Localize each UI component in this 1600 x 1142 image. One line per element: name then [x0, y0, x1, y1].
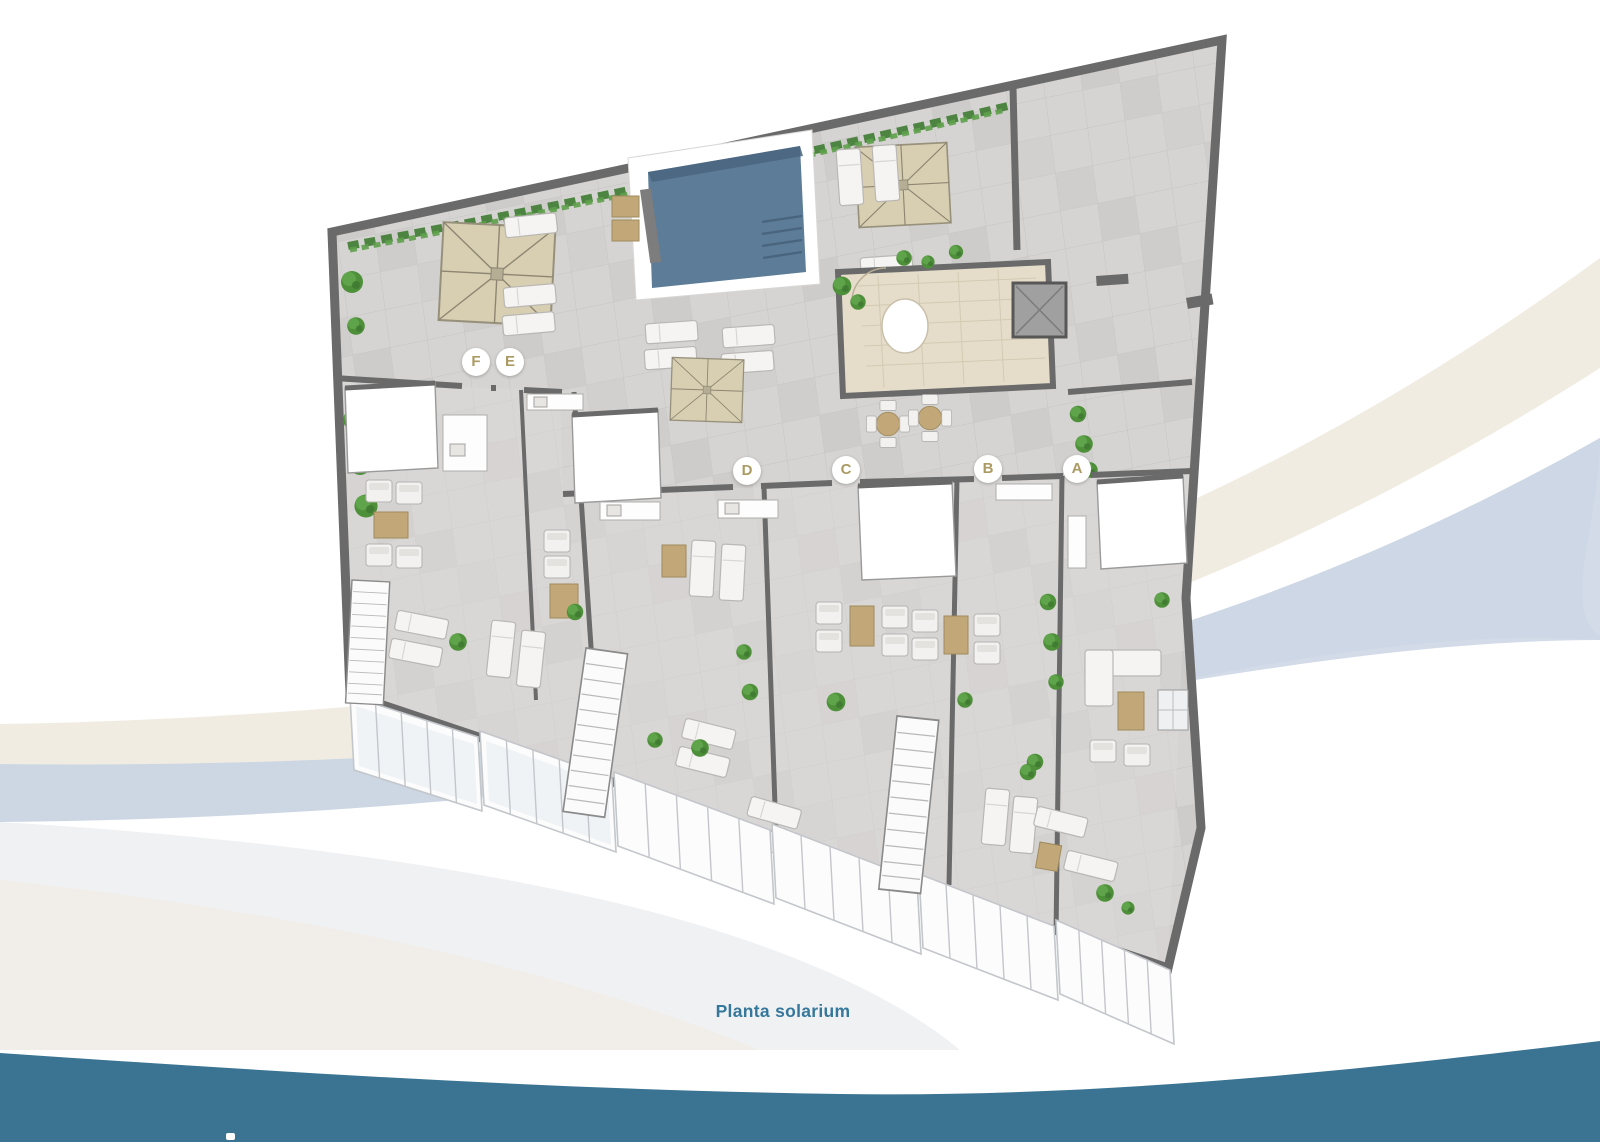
footer-wave [0, 0, 1600, 1142]
solarium-plan-page: FEDCBA Planta solarium [0, 0, 1600, 1142]
logo-fragment [226, 1133, 235, 1140]
